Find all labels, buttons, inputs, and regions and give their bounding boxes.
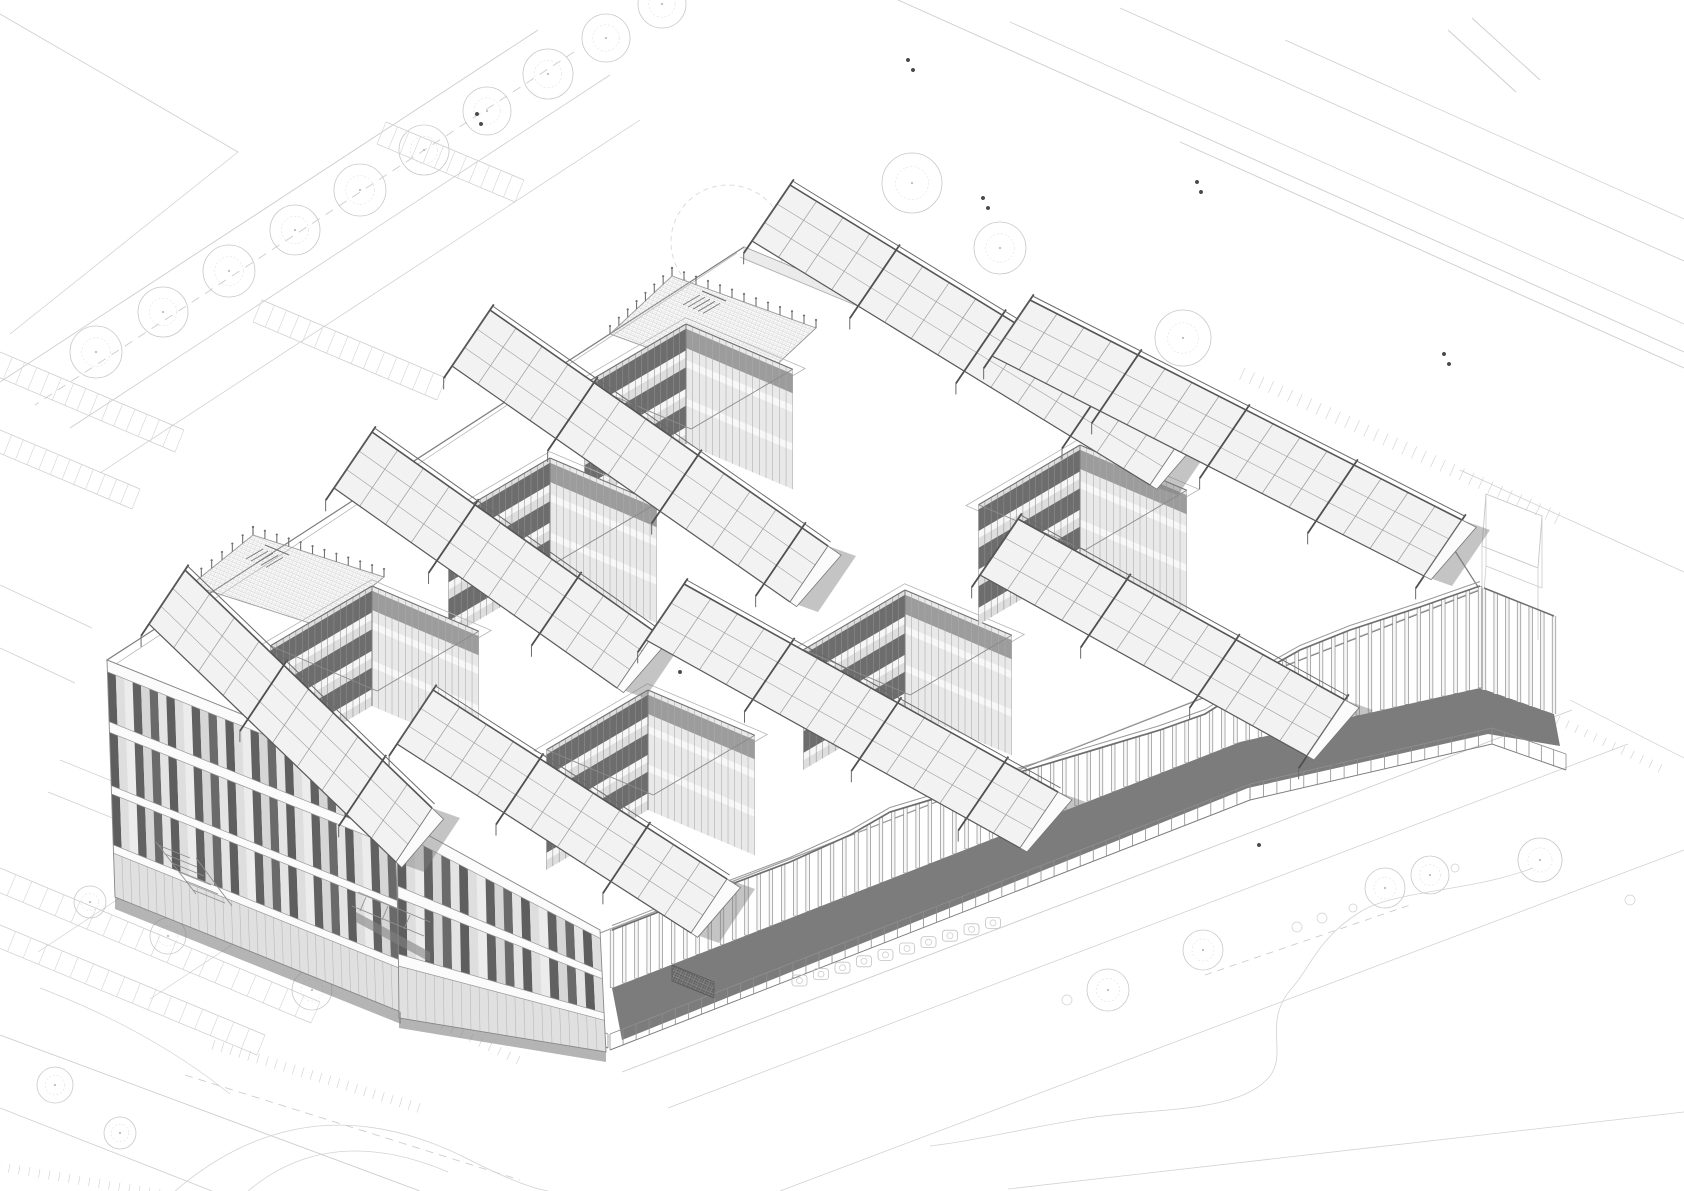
axonometric-drawing	[0, 0, 1684, 1191]
building	[107, 179, 1566, 1062]
architectural-drawing-page	[0, 0, 1684, 1191]
ghost-massing	[1482, 494, 1542, 640]
